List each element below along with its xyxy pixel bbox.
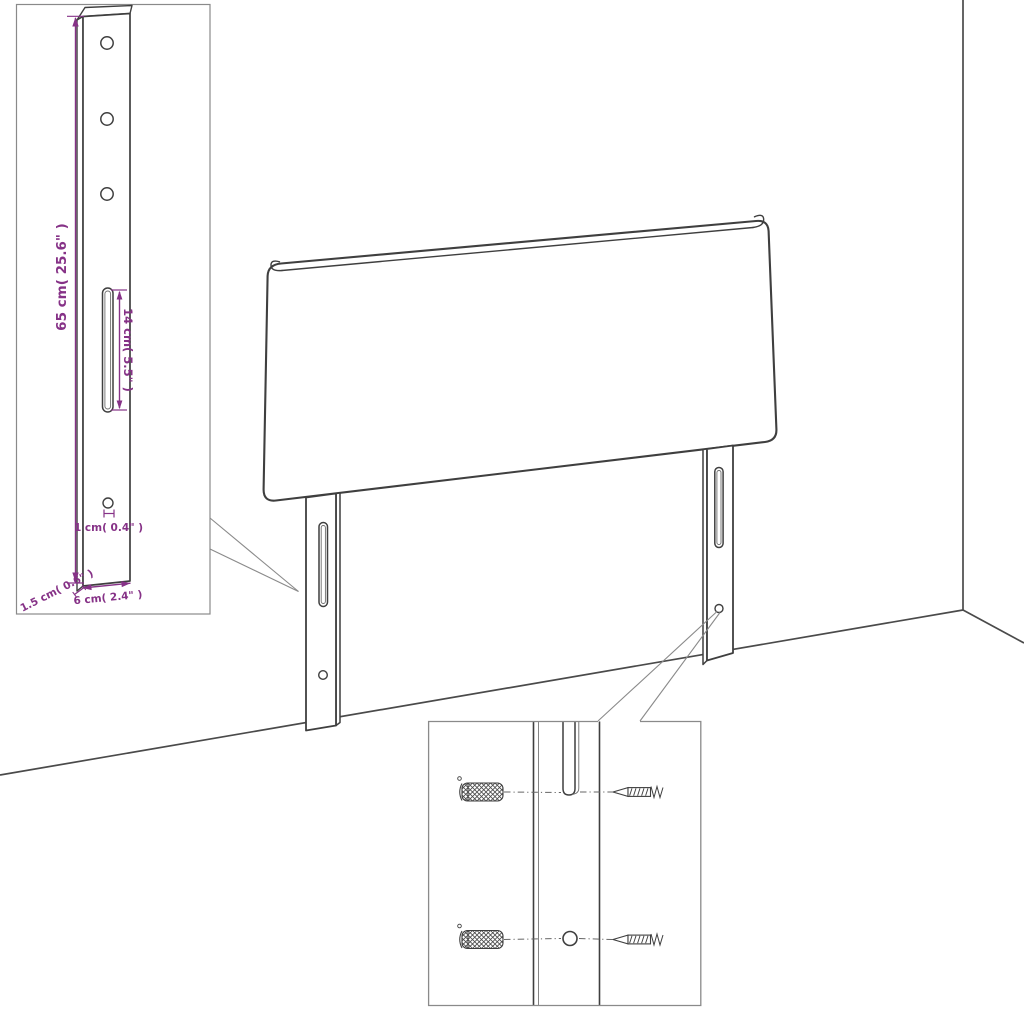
left-leg-screw-hole xyxy=(319,671,328,680)
detail-leg-hole-middle xyxy=(101,113,113,125)
callout-line xyxy=(598,612,717,722)
detail-leg-hole-lower xyxy=(101,188,113,200)
leg-inset-callout-lines xyxy=(210,518,299,592)
right-leg-screw-hole xyxy=(715,605,723,613)
hardware-detail-inset xyxy=(429,722,701,1006)
headboard-front-face xyxy=(264,221,777,501)
headboard-right-leg xyxy=(703,446,733,665)
callout-line xyxy=(210,518,299,592)
left-leg-slot xyxy=(319,523,328,607)
leg-detail-inset: 65 cm( 25.6" ) 14 cm( 5.5" ) 1 cm( 0.4" … xyxy=(17,5,211,615)
hardware-inset-callout-lines xyxy=(598,612,720,722)
right-leg-slot xyxy=(715,468,723,548)
callout-line xyxy=(640,613,720,722)
product-diagram-canvas: 65 cm( 25.6" ) 14 cm( 5.5" ) 1 cm( 0.4" … xyxy=(0,0,1024,1024)
dimension-leg-height-label: 65 cm( 25.6" ) xyxy=(54,223,70,331)
detail-leg-slot xyxy=(103,288,114,412)
dimension-hole-label: 1 cm( 0.4" ) xyxy=(74,522,143,534)
headboard-panel xyxy=(264,215,777,500)
headboard-left-leg xyxy=(306,493,340,731)
detail-leg-side-face xyxy=(77,17,83,592)
detail-leg-hole-bottom xyxy=(103,498,113,508)
headboard-dimension-diagram: 65 cm( 25.6" ) 14 cm( 5.5" ) 1 cm( 0.4" … xyxy=(0,0,1024,1024)
dimension-slot-length-label: 14 cm( 5.5" ) xyxy=(121,308,135,392)
hardware-inset-background xyxy=(429,722,701,1006)
hardware-inset-hole xyxy=(563,932,577,946)
floor-line-right xyxy=(963,610,1024,643)
detail-leg-hole-top xyxy=(101,37,113,49)
